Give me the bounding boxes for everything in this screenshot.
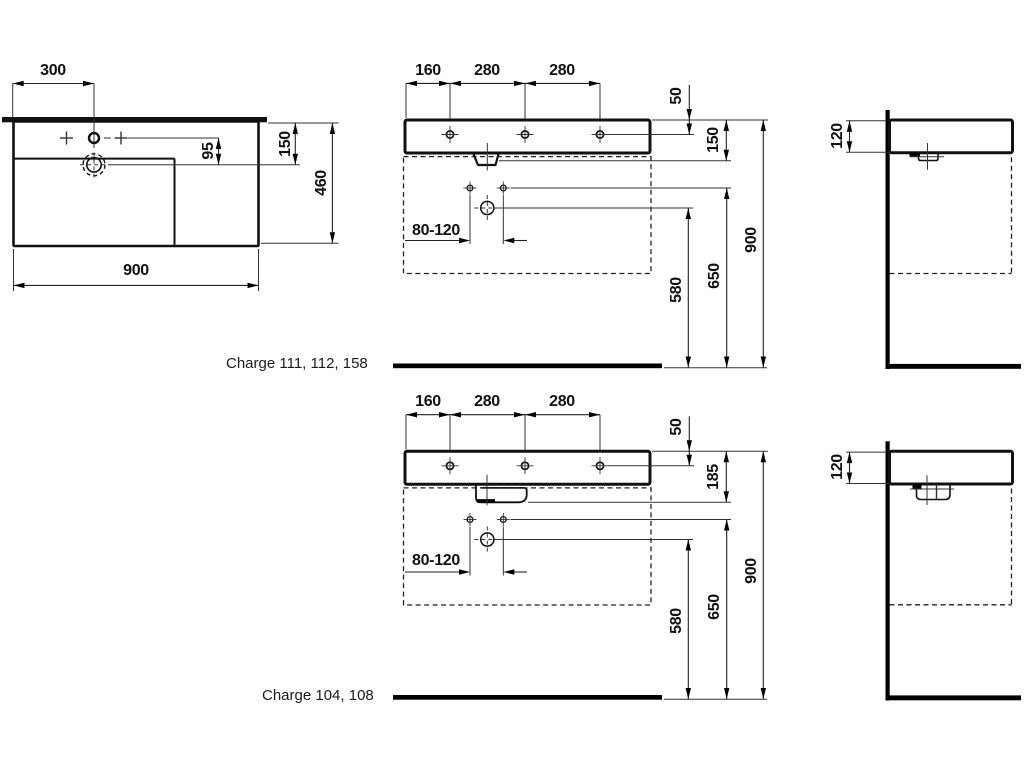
dim-fb-seg1: 160 [415,393,441,411]
dim-ft-seg2: 280 [474,62,500,80]
plan-view [2,81,339,291]
dim-sb-thickness: 120 [829,454,847,480]
dim-fb-drain-height: 580 [668,608,686,634]
dim-fb-seg2: 280 [474,393,500,411]
dim-ft-seg1: 160 [415,62,441,80]
side-view-charge-104 [846,441,1021,700]
dim-fb-trap-range: 80-120 [412,552,460,570]
dim-plan-depth: 460 [313,170,331,196]
dim-ft-height: 150 [705,127,723,153]
model-label-bottom: Charge 104, 108 [262,687,374,704]
dim-st-thickness: 120 [829,123,847,149]
dim-fb-fixing-height: 650 [706,594,724,620]
technical-drawing-sheet: 300 900 150 95 460 160 280 280 50 150 58… [0,0,1024,768]
dim-plan-width: 900 [123,262,149,280]
dim-ft-fixing-height: 650 [706,263,724,289]
dim-ft-seg3: 280 [549,62,575,80]
dim-ft-trap-range: 80-120 [412,222,460,240]
dim-plan-back-to-drain: 150 [277,131,295,157]
dim-ft-rim-height: 900 [743,227,761,253]
dim-ft-hole-inset: 50 [668,87,686,104]
dim-plan-faucet-to-drain: 95 [200,142,218,159]
model-label-top: Charge 111, 112, 158 [226,355,368,372]
drawing-linework [0,0,1024,768]
side-view-charge-111 [846,110,1021,369]
dim-fb-height: 185 [705,464,723,490]
dim-fb-seg3: 280 [549,393,575,411]
dim-plan-faucet-offset: 300 [40,62,66,80]
dim-fb-rim-height: 900 [743,558,761,584]
dim-fb-hole-inset: 50 [668,418,686,435]
dim-ft-drain-height: 580 [668,277,686,303]
